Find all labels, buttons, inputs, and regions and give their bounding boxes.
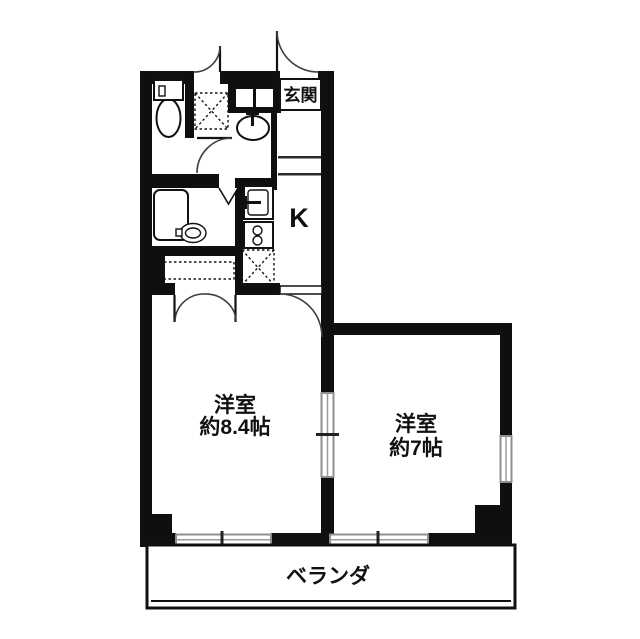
room1-size-label: 約8.4帖: [199, 415, 270, 439]
entrance-step-line: [278, 156, 321, 159]
kitchen-label: K: [289, 203, 309, 233]
entrance-label: 玄関: [284, 85, 318, 105]
gas-stove: [244, 222, 273, 248]
room2-size-label: 約7帖: [389, 436, 443, 460]
floor-plan: 玄関 K 洋室 約8.4帖 洋室 約7帖 ベランダ: [0, 0, 640, 639]
toilet: [154, 80, 183, 137]
shoe-storage: [228, 84, 281, 113]
room2-name-label: 洋室: [395, 412, 437, 436]
veranda-label: ベランダ: [286, 564, 370, 588]
window-room2-east: [501, 436, 512, 482]
floor-plan-drawing: 玄関 K 洋室 約8.4帖 洋室 約7帖 ベランダ: [0, 0, 640, 639]
room1-name-label: 洋室: [214, 393, 256, 417]
entrance-step-line: [278, 173, 321, 176]
kitchen-sink: [243, 186, 273, 219]
